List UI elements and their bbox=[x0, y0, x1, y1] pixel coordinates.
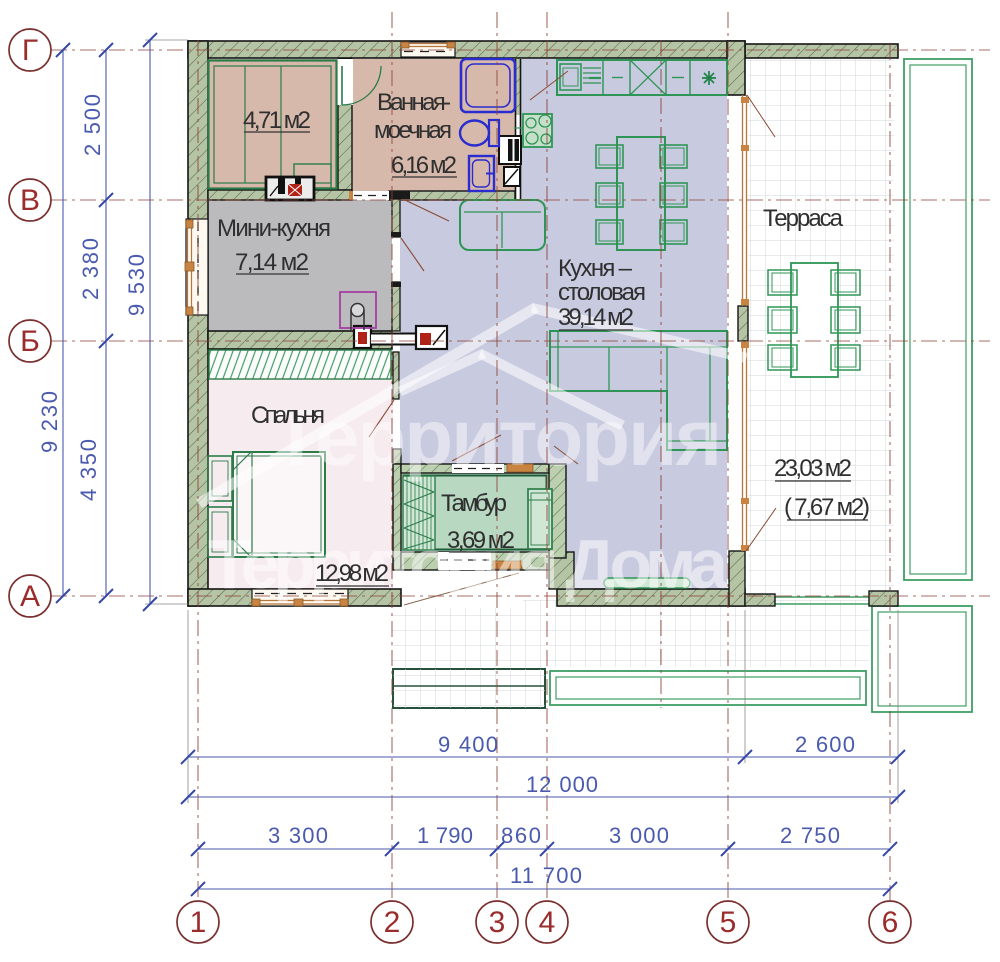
svg-text:3 300: 3 300 bbox=[268, 823, 328, 848]
svg-text:2 750: 2 750 bbox=[780, 823, 840, 848]
svg-text:9 530: 9 530 bbox=[124, 254, 149, 316]
svg-text:столовая: столовая bbox=[558, 279, 646, 306]
svg-text:Ванная-: Ванная- bbox=[377, 89, 451, 116]
svg-text:23,03 м2: 23,03 м2 bbox=[774, 455, 852, 482]
svg-text:12 000: 12 000 bbox=[526, 772, 598, 797]
svg-text:Б: Б bbox=[20, 325, 40, 358]
svg-text:3: 3 bbox=[489, 906, 506, 939]
svg-text:4 350: 4 350 bbox=[76, 439, 101, 501]
svg-text:В: В bbox=[20, 184, 40, 217]
svg-text:860: 860 bbox=[501, 823, 541, 848]
svg-text:39,14 м2: 39,14 м2 bbox=[558, 304, 634, 331]
svg-text:Г: Г bbox=[22, 34, 38, 67]
svg-text:7,14 м2: 7,14 м2 bbox=[235, 249, 309, 276]
svg-text:9 230: 9 230 bbox=[37, 391, 62, 453]
svg-text:1 790: 1 790 bbox=[417, 823, 473, 848]
svg-text:2: 2 bbox=[384, 906, 401, 939]
svg-text:5: 5 bbox=[720, 906, 737, 939]
svg-text:3 000: 3 000 bbox=[609, 823, 669, 848]
svg-text:моечная: моечная bbox=[374, 117, 452, 144]
svg-text:2 380: 2 380 bbox=[78, 238, 103, 300]
svg-text:4,71 м2: 4,71 м2 bbox=[243, 107, 311, 134]
svg-text:Терраса: Терраса bbox=[763, 205, 844, 232]
svg-text:9 400: 9 400 bbox=[438, 732, 498, 757]
svg-text:( 7,67 м2): ( 7,67 м2) bbox=[784, 494, 870, 521]
svg-text:6,16 м2: 6,16 м2 bbox=[391, 152, 457, 179]
svg-text:Спальня: Спальня bbox=[251, 402, 325, 429]
svg-text:Кухня –: Кухня – bbox=[558, 255, 633, 282]
svg-text:12,98 м2: 12,98 м2 bbox=[315, 560, 389, 587]
svg-text:4: 4 bbox=[539, 906, 556, 939]
svg-text:Мини-кухня: Мини-кухня bbox=[217, 215, 331, 242]
svg-text:А: А bbox=[20, 580, 40, 613]
svg-text:Тамбур: Тамбур bbox=[441, 490, 507, 517]
svg-text:2 500: 2 500 bbox=[80, 94, 105, 156]
svg-text:6: 6 bbox=[882, 906, 899, 939]
svg-text:1: 1 bbox=[190, 906, 207, 939]
svg-text:2 600: 2 600 bbox=[795, 732, 855, 757]
svg-text:3,69 м2: 3,69 м2 bbox=[447, 527, 515, 554]
